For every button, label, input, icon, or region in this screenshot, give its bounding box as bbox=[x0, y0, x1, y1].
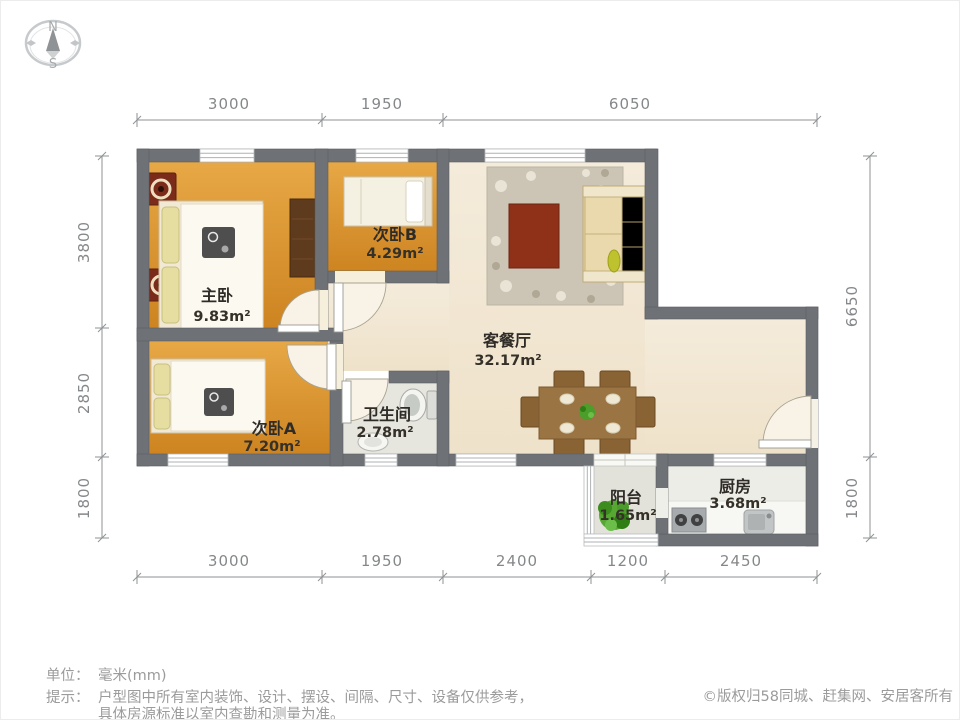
kitchen-area: 3.68m² bbox=[709, 496, 766, 512]
floorplan-page: N S bbox=[0, 0, 960, 720]
plate-icon bbox=[606, 423, 620, 433]
tip-line2: 具体房源标准以室内查勘和测量为准。 bbox=[98, 706, 345, 720]
bathroom-door-leaf bbox=[342, 381, 351, 423]
dim-bottom-1: 3000 bbox=[208, 552, 250, 570]
sofa-armrest bbox=[583, 271, 645, 282]
compass-south-label: S bbox=[49, 57, 57, 72]
bedroom-a-door-leaf bbox=[327, 344, 336, 390]
entry-door-leaf bbox=[759, 440, 811, 448]
wall-left bbox=[137, 149, 149, 466]
living-dining-area: 32.17m² bbox=[474, 353, 541, 369]
window bbox=[714, 454, 766, 466]
stove-burner-center bbox=[695, 518, 699, 522]
wall-bathroom-right bbox=[437, 371, 449, 466]
compass-north-label: N bbox=[48, 20, 58, 35]
wall-step-horizontal bbox=[645, 307, 818, 319]
dim-bottom-3: 2400 bbox=[496, 552, 538, 570]
wall-kitchen-bottom bbox=[656, 534, 818, 546]
bedroom-b-door-opening bbox=[335, 271, 385, 283]
plate-icon bbox=[560, 394, 574, 404]
sofa-pillow bbox=[608, 250, 620, 272]
master-bedroom-name: 主卧 bbox=[201, 286, 233, 305]
bed-tray bbox=[202, 227, 235, 258]
bedroom-a-name: 次卧A bbox=[252, 419, 297, 438]
living-dining-name: 客餐厅 bbox=[483, 331, 531, 350]
dimension-left: 3800 2850 1800 bbox=[75, 152, 109, 542]
window bbox=[168, 454, 228, 466]
dim-right-2: 1800 bbox=[843, 477, 861, 519]
window bbox=[356, 149, 408, 162]
table-plant-icon bbox=[579, 404, 595, 420]
pillow bbox=[162, 267, 179, 323]
balcony-name: 阳台 bbox=[610, 488, 642, 507]
mat-center bbox=[158, 186, 164, 192]
tray-cup-icon bbox=[222, 246, 229, 253]
dim-bottom-4: 1200 bbox=[607, 552, 649, 570]
wardrobe bbox=[290, 199, 315, 277]
window bbox=[485, 149, 585, 162]
dim-left-2: 2850 bbox=[75, 372, 93, 414]
stove-burner-center bbox=[679, 518, 683, 522]
pillow bbox=[154, 398, 170, 429]
dining-chair bbox=[521, 397, 541, 427]
tip-line1: 户型图中所有室内装饰、设计、摆设、间隔、尺寸、设备仅供参考， bbox=[98, 689, 533, 706]
floorplan-svg: N S bbox=[1, 1, 960, 720]
unit-label: 单位： bbox=[46, 667, 90, 684]
balcony-area: 1.65m² bbox=[599, 508, 656, 524]
tip-label: 提示： bbox=[46, 689, 90, 706]
copyright-text: ©版权归58同城、赶集网、安居客所有 bbox=[703, 688, 953, 705]
pillow bbox=[154, 364, 170, 395]
compass-west-marker bbox=[26, 40, 36, 46]
unit-value: 毫米(mm) bbox=[98, 666, 167, 684]
plate-icon bbox=[560, 423, 574, 433]
tray-cup-icon bbox=[221, 405, 227, 411]
wall-bedroom-b-right bbox=[437, 149, 449, 283]
bedroom-b-name: 次卧B bbox=[373, 225, 417, 244]
toilet-tank bbox=[427, 391, 437, 419]
faucet-icon bbox=[767, 514, 772, 519]
kitchen-sink-basin bbox=[748, 514, 765, 530]
compass-east-marker bbox=[70, 40, 80, 46]
dim-bottom-2: 1950 bbox=[361, 552, 403, 570]
window bbox=[200, 149, 254, 162]
dimension-bottom: 3000 1950 2400 1200 2450 bbox=[133, 552, 821, 584]
balcony-sliding-door bbox=[594, 454, 656, 466]
dimension-right: 6650 1800 bbox=[843, 152, 877, 542]
table-plant-leaf bbox=[588, 412, 594, 418]
bedroom-a-area: 7.20m² bbox=[243, 439, 300, 455]
bedroom-b-furniture bbox=[344, 177, 432, 226]
dim-left-1: 3800 bbox=[75, 221, 93, 263]
table-plant-leaf bbox=[580, 406, 586, 412]
sofa-back bbox=[622, 197, 643, 271]
coffee-table bbox=[509, 204, 559, 268]
kitchen-name: 厨房 bbox=[719, 477, 751, 496]
compass: N S bbox=[26, 20, 80, 72]
master-door-leaf bbox=[278, 325, 319, 332]
wall-step-vertical bbox=[645, 149, 658, 319]
bedroom-b-door-leaf bbox=[334, 283, 343, 332]
bed-headboard bbox=[425, 177, 432, 226]
plate-icon bbox=[606, 394, 620, 404]
dim-top-1: 3000 bbox=[208, 95, 250, 113]
pillow bbox=[162, 207, 179, 263]
living-room-furniture bbox=[487, 167, 645, 305]
dim-top-3: 6050 bbox=[609, 95, 651, 113]
dim-bottom-5: 2450 bbox=[720, 552, 762, 570]
footer: 单位： 毫米(mm) 提示： 户型图中所有室内装饰、设计、摆设、间隔、尺寸、设备… bbox=[46, 666, 953, 720]
balcony-window bbox=[584, 534, 658, 546]
dim-left-3: 1800 bbox=[75, 477, 93, 519]
bedroom-b-area: 4.29m² bbox=[366, 246, 423, 262]
dim-top-2: 1950 bbox=[361, 95, 403, 113]
window bbox=[365, 454, 397, 466]
balcony-kitchen-opening bbox=[656, 488, 668, 518]
dining-chair bbox=[635, 397, 655, 427]
pillow bbox=[406, 181, 423, 222]
bathroom-name: 卫生间 bbox=[363, 405, 411, 424]
bathroom-area: 2.78m² bbox=[356, 425, 413, 441]
dim-right-1: 6650 bbox=[843, 285, 861, 327]
balcony-window bbox=[584, 466, 594, 534]
sofa-armrest bbox=[583, 186, 645, 197]
master-bedroom-area: 9.83m² bbox=[193, 309, 250, 325]
window bbox=[456, 454, 516, 466]
dimension-top: 3000 1950 6050 bbox=[133, 95, 821, 127]
bed-tray bbox=[204, 388, 234, 416]
bedroom-a-furniture bbox=[151, 359, 265, 433]
